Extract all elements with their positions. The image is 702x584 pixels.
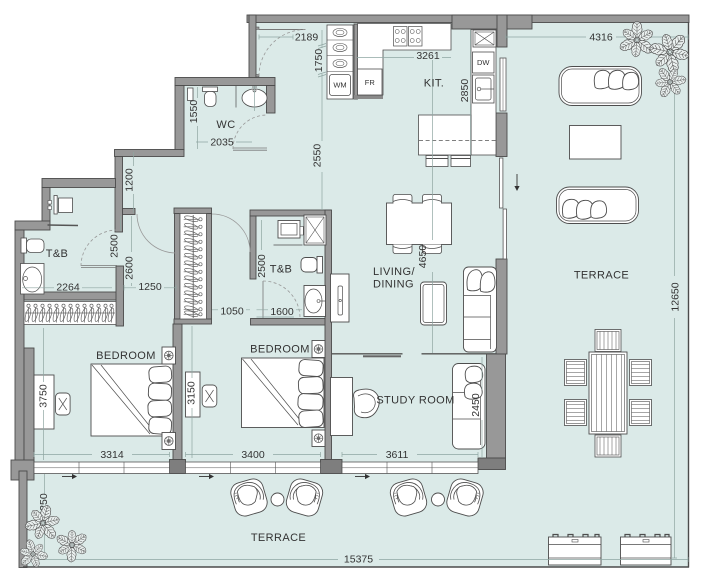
- svg-text:KIT.: KIT.: [424, 78, 445, 90]
- svg-text:1200: 1200: [124, 168, 136, 192]
- svg-text:T&B: T&B: [46, 248, 69, 260]
- svg-text:WM: WM: [333, 81, 346, 90]
- svg-text:BEDROOM: BEDROOM: [250, 344, 310, 356]
- svg-text:DINING: DINING: [373, 279, 414, 291]
- svg-text:4650: 4650: [417, 245, 429, 269]
- svg-text:BEDROOM: BEDROOM: [96, 350, 156, 362]
- svg-text:1600: 1600: [270, 306, 294, 318]
- svg-text:LIVING/: LIVING/: [373, 266, 415, 278]
- svg-text:2450: 2450: [470, 393, 482, 417]
- svg-text:2850: 2850: [459, 79, 471, 103]
- svg-text:3314: 3314: [100, 449, 124, 461]
- svg-text:12650: 12650: [670, 282, 682, 311]
- svg-text:WC: WC: [216, 119, 235, 131]
- svg-text:2035: 2035: [210, 137, 234, 149]
- svg-text:1750: 1750: [313, 49, 325, 73]
- svg-text:TERRACE: TERRACE: [574, 270, 629, 282]
- svg-text:2600: 2600: [124, 256, 136, 280]
- svg-text:DW: DW: [477, 58, 490, 67]
- svg-text:1250: 1250: [138, 281, 162, 293]
- svg-text:FR: FR: [365, 78, 376, 87]
- svg-text:2189: 2189: [295, 32, 319, 44]
- svg-text:TERRACE: TERRACE: [251, 532, 306, 544]
- svg-text:1550: 1550: [188, 100, 200, 124]
- svg-text:2500: 2500: [109, 234, 121, 258]
- svg-text:T&B: T&B: [270, 264, 293, 276]
- svg-text:4316: 4316: [589, 32, 613, 44]
- svg-text:3400: 3400: [241, 449, 265, 461]
- svg-text:3150: 3150: [186, 381, 198, 405]
- svg-text:STUDY ROOM: STUDY ROOM: [376, 395, 454, 407]
- svg-text:3611: 3611: [386, 449, 409, 461]
- svg-text:3750: 3750: [38, 384, 50, 408]
- svg-text:1050: 1050: [220, 306, 244, 318]
- svg-text:2500: 2500: [256, 254, 268, 278]
- svg-text:2550: 2550: [312, 144, 324, 168]
- svg-text:3261: 3261: [416, 50, 440, 62]
- svg-text:2264: 2264: [56, 282, 80, 294]
- svg-text:15375: 15375: [344, 554, 373, 566]
